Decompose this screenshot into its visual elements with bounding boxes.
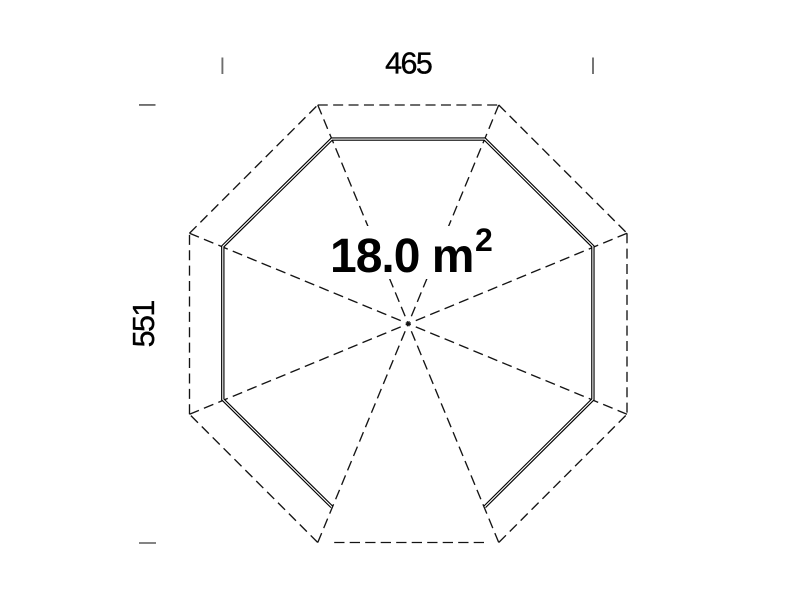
- svg-text:551: 551: [127, 301, 161, 348]
- svg-text:465: 465: [385, 47, 432, 81]
- svg-text:18.0 m: 18.0 m: [330, 230, 473, 283]
- svg-text:2: 2: [475, 222, 493, 258]
